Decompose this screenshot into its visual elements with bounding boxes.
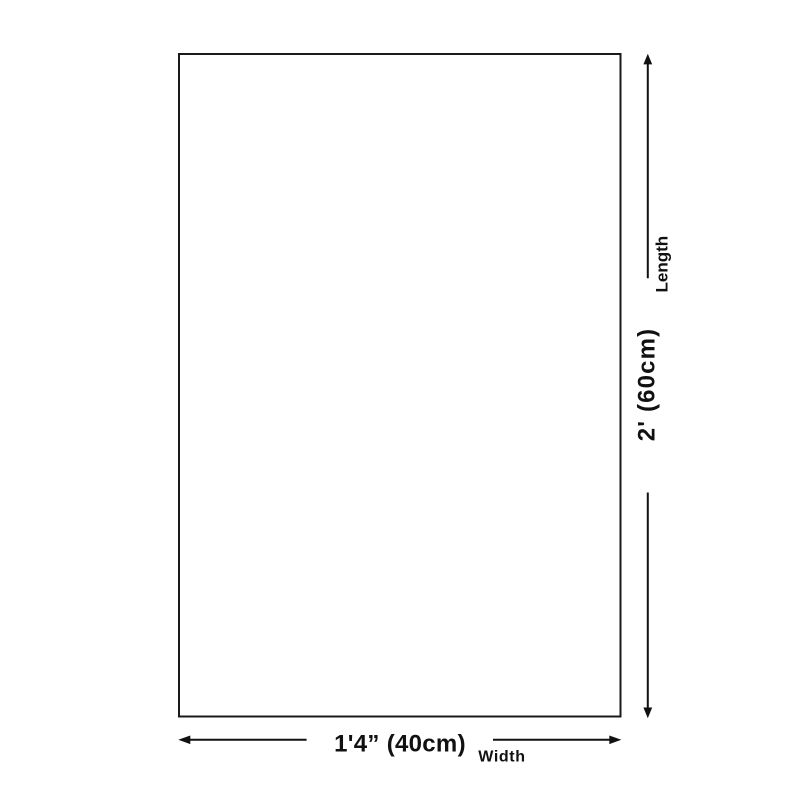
svg-text:2' (60cm): 2' (60cm) [634,328,661,441]
svg-text:Width: Width [478,749,525,766]
svg-text:1'4” (40cm): 1'4” (40cm) [334,730,466,757]
svg-text:Length: Length [653,236,672,293]
